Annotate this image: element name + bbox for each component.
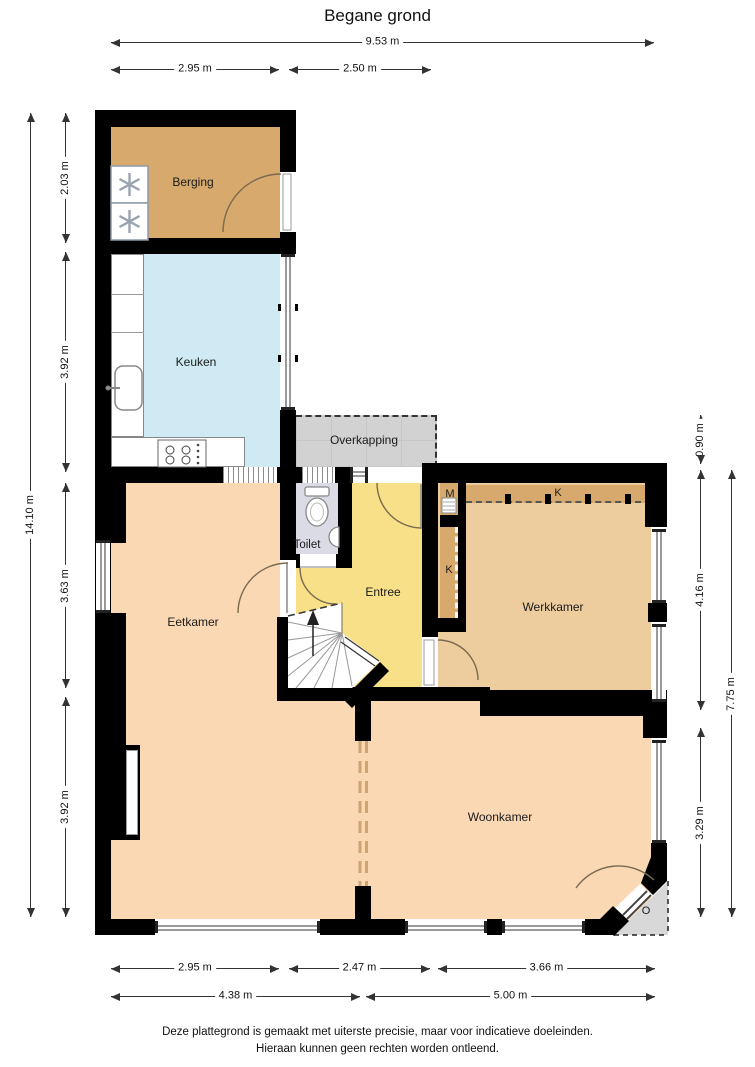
- dimension-label: 0.90 m: [694, 419, 708, 461]
- dimension-label: 4.16 m: [694, 569, 708, 611]
- door-opening-werkkamer: [422, 637, 438, 687]
- room-label-entree: Entree: [365, 585, 400, 599]
- disclaimer-line2: Hieraan kunnen geen rechten worden ontle…: [0, 1041, 755, 1058]
- dimension-top-entree: 2.50 m: [289, 69, 431, 70]
- wall: [585, 919, 620, 935]
- wall: [280, 110, 296, 172]
- wall: [95, 110, 296, 127]
- wall: [440, 515, 458, 527]
- dimension-label: 5.00 m: [490, 989, 532, 1003]
- counter-divider: [111, 332, 144, 333]
- door-opening-front: [375, 467, 422, 483]
- window: [405, 921, 487, 933]
- floorplan-begane-grond: Begane grond: [0, 0, 755, 1067]
- dimension-left-woonkamer: 3.92 m: [65, 697, 66, 917]
- wall: [651, 843, 667, 863]
- wall: [480, 690, 667, 716]
- wall: [277, 687, 490, 701]
- room-label-eetkamer: Eetkamer: [167, 615, 218, 629]
- dimension-top-total: 9.53 m: [111, 42, 654, 43]
- wall: [335, 467, 350, 483]
- wall: [320, 919, 405, 935]
- room-label-werkkamer: Werkkamer: [522, 600, 583, 614]
- label-meterkast: M: [445, 488, 454, 500]
- wall: [422, 618, 466, 632]
- vent-opening: [302, 467, 335, 483]
- dimension-label: 3.63 m: [59, 565, 73, 607]
- closet-tick: [545, 494, 551, 504]
- dimension-label: 7.75 m: [725, 673, 739, 715]
- room-entree: [296, 560, 422, 687]
- dimension-left-eetkamer: 3.63 m: [65, 483, 66, 688]
- dimension-label: 3.92 m: [59, 341, 73, 383]
- window: [96, 540, 110, 613]
- wall: [645, 479, 667, 527]
- door-opening-eetkamer: [280, 560, 296, 617]
- window: [281, 254, 295, 410]
- closet-tick: [505, 494, 511, 504]
- dimension-right-overkapping: 0.90 m: [700, 415, 701, 464]
- room-entree-top: [352, 483, 422, 560]
- dimension-label: 3.92 m: [59, 786, 73, 828]
- dimension-left-keuken: 3.92 m: [65, 252, 66, 472]
- disclaimer-line1: Deze plattegrond is gemaakt met uiterste…: [0, 1024, 755, 1041]
- wall: [487, 919, 502, 935]
- dimension-right-total: 7.75 m: [731, 470, 732, 917]
- disclaimer: Deze plattegrond is gemaakt met uiterste…: [0, 1024, 755, 1057]
- wall: [422, 483, 438, 637]
- dimension-label: 2.47 m: [339, 961, 381, 975]
- wall: [422, 463, 667, 483]
- dimension-bottom-woonkamer: 3.66 m: [438, 968, 655, 969]
- dimension-top-berging: 2.95 m: [111, 69, 279, 70]
- room-label-toilet: Toilet: [294, 539, 321, 551]
- wall: [95, 467, 223, 483]
- dimension-label: 14.10 m: [24, 491, 38, 539]
- window: [652, 529, 666, 603]
- wall: [458, 483, 466, 618]
- room-woonkamer-mid: [280, 701, 480, 919]
- dimension-left-berging: 2.03 m: [65, 113, 66, 243]
- room-label-overkapping: Overkapping: [330, 433, 398, 447]
- window: [652, 740, 666, 843]
- window: [502, 921, 585, 933]
- wall: [277, 617, 296, 687]
- room-eetkamer: [111, 483, 280, 919]
- dimension-label: 2.95 m: [174, 62, 216, 76]
- wall: [336, 554, 352, 568]
- wall: [648, 603, 667, 622]
- dimension-right-woonkamer: 3.29 m: [700, 728, 701, 917]
- kitchen-counter-left: [111, 254, 144, 437]
- wall: [95, 919, 155, 935]
- dimension-bottom-links-totaal: 4.38 m: [111, 996, 360, 997]
- dimension-label: 2.03 m: [59, 157, 73, 199]
- counter-divider: [111, 294, 144, 295]
- dimension-label: 2.50 m: [339, 62, 381, 76]
- dimension-bottom-midden: 2.47 m: [289, 968, 430, 969]
- window: [155, 921, 320, 933]
- wall: [111, 613, 126, 745]
- label-portiek: O: [642, 905, 651, 917]
- wall: [95, 110, 111, 470]
- room-label-woonkamer: Woonkamer: [468, 810, 532, 824]
- wall-niche: [126, 750, 138, 835]
- kitchen-counter-bottom: [111, 437, 245, 467]
- label-kast-hal: K: [445, 564, 452, 576]
- wall: [355, 701, 371, 741]
- dimension-left-total: 14.10 m: [30, 113, 31, 917]
- dimension-right-werkkamer: 4.16 m: [700, 470, 701, 710]
- closet-tick: [585, 494, 591, 504]
- wall: [95, 238, 296, 254]
- dimension-label: 4.38 m: [215, 989, 257, 1003]
- dimension-label: 9.53 m: [362, 35, 404, 49]
- serving-hatch: [223, 467, 277, 483]
- wall: [355, 886, 371, 919]
- room-label-berging: Berging: [172, 175, 213, 189]
- dimension-label: 3.66 m: [526, 961, 568, 975]
- room-werkkamer: [438, 483, 651, 715]
- dimension-label: 3.29 m: [694, 802, 708, 844]
- dimension-label: 2.95 m: [174, 961, 216, 975]
- wall: [111, 483, 126, 543]
- window: [652, 624, 666, 702]
- door-opening-berging: [281, 172, 295, 232]
- door-opening-toilet: [300, 554, 336, 568]
- room-label-keuken: Keuken: [176, 355, 217, 369]
- closet-tick: [625, 494, 631, 504]
- wall: [643, 702, 667, 738]
- label-kast-werkkamer: K: [554, 487, 561, 499]
- wall: [280, 410, 296, 470]
- dimension-bottom-rechts-totaal: 5.00 m: [366, 996, 655, 997]
- page-title: Begane grond: [0, 6, 755, 26]
- dimension-bottom-eetkamer: 2.95 m: [111, 968, 279, 969]
- window-sidelight: [350, 467, 368, 483]
